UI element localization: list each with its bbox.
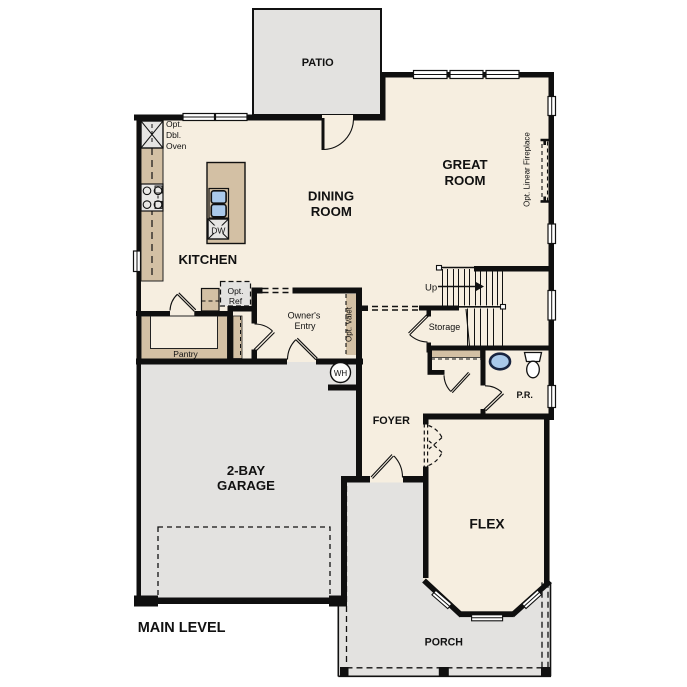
svg-text:ROOM: ROOM bbox=[311, 204, 352, 219]
svg-text:ROOM: ROOM bbox=[444, 173, 485, 188]
svg-text:Opt.: Opt. bbox=[227, 286, 243, 296]
svg-text:Pantry: Pantry bbox=[173, 349, 198, 359]
svg-text:Ref: Ref bbox=[229, 296, 243, 306]
svg-text:2-BAY: 2-BAY bbox=[227, 463, 266, 478]
svg-text:DINING: DINING bbox=[308, 188, 354, 203]
svg-text:WH: WH bbox=[334, 369, 348, 378]
svg-text:DW: DW bbox=[211, 226, 225, 236]
svg-text:Dbl.: Dbl. bbox=[166, 130, 181, 140]
svg-text:FLEX: FLEX bbox=[469, 516, 505, 531]
svg-text:Owner's: Owner's bbox=[288, 311, 321, 321]
svg-text:KITCHEN: KITCHEN bbox=[178, 252, 237, 267]
svg-text:Opt. Valet: Opt. Valet bbox=[345, 306, 354, 342]
svg-text:Storage: Storage bbox=[429, 322, 461, 332]
svg-text:FOYER: FOYER bbox=[373, 415, 410, 427]
svg-text:MAIN LEVEL: MAIN LEVEL bbox=[138, 620, 226, 636]
svg-text:Opt. Linear Fireplace: Opt. Linear Fireplace bbox=[523, 132, 532, 207]
svg-text:Up: Up bbox=[425, 283, 437, 294]
svg-text:P.R.: P.R. bbox=[517, 390, 533, 400]
svg-text:PORCH: PORCH bbox=[425, 636, 463, 648]
svg-text:GREAT: GREAT bbox=[442, 157, 487, 172]
svg-text:GARAGE: GARAGE bbox=[217, 478, 275, 493]
svg-text:Oven: Oven bbox=[166, 141, 187, 151]
svg-text:Entry: Entry bbox=[294, 321, 316, 331]
svg-text:PATIO: PATIO bbox=[302, 57, 334, 69]
